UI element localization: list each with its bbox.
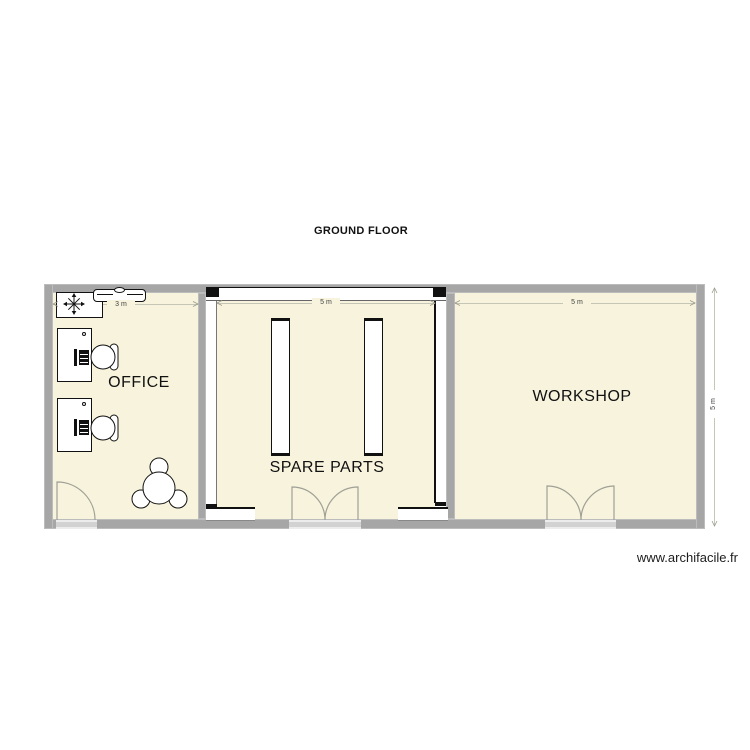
office-room-label: OFFICE [39,374,239,392]
spare-parts-double-door [292,487,358,520]
workshop-double-door [547,486,614,520]
dim-label-office-width: 3 m [107,300,135,309]
meeting-table [143,472,175,504]
ac-snowflake-icon [63,293,85,315]
dim-label-workshop-width: 5 m [563,298,591,308]
spare-parts-room-label: SPARE PARTS [227,459,427,477]
workshop-room-label: WORKSHOP [482,388,682,406]
desk-chair-1 [91,345,115,369]
dim-label-depth: 5 m [709,390,719,418]
desk-chair-2 [91,416,115,440]
floor-plan-page: GROUND FLOOR [0,0,750,750]
office-single-door [57,482,95,520]
dim-label-spare-parts-width: 5 m [312,298,340,308]
watermark: www.archifacile.fr [438,550,738,566]
